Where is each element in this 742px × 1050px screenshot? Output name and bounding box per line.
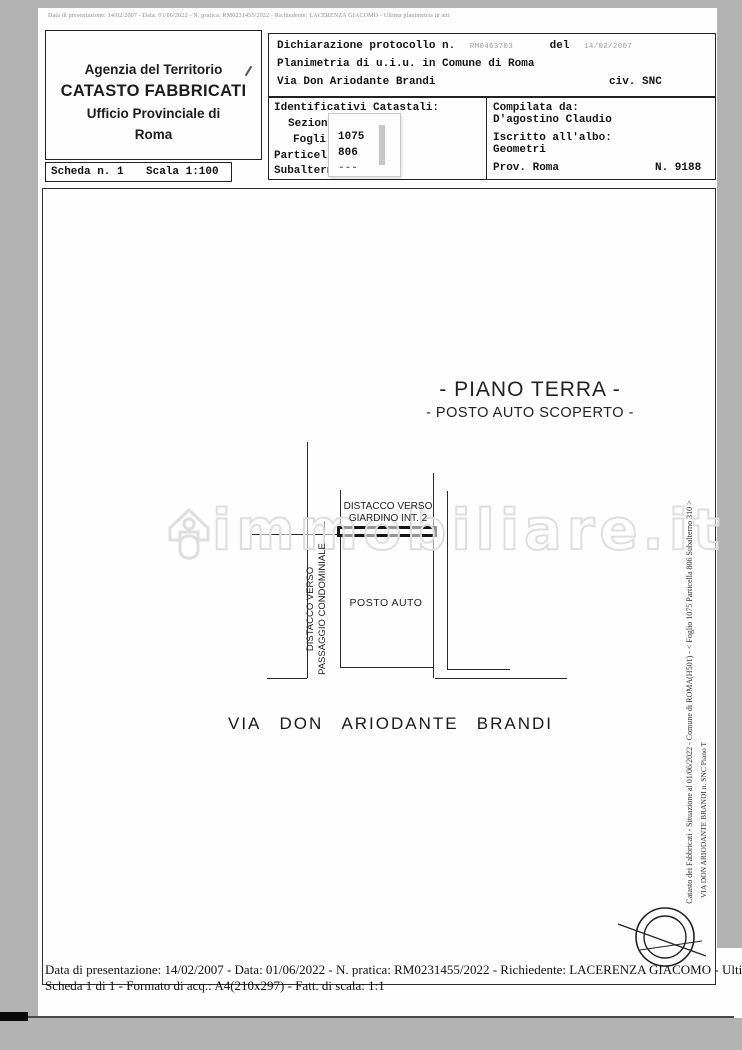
row-foglio: Fogli [293,134,326,146]
room-bottom-edge [340,667,434,668]
street-word-via: VIA [228,714,261,734]
albo-number: N. 9188 [655,162,701,174]
plan-title: - PIANO TERRA - [410,378,650,402]
protocol-date: 14/02/2007 [584,43,632,51]
catastali-box: Identificativi Catastali: Sezion Fogli P… [268,97,716,180]
giardino-label-line1: DISTACCO VERSO [328,501,448,513]
street-line: Via Don Ariodante Brandi [277,76,435,88]
catastali-value-listbox[interactable]: 1075 806 --- [328,113,401,177]
giardino-label-line2: GIARDINO INT. 2 [328,513,448,525]
planimetria-line: Planimetria di u.i.u. in Comune di Roma [277,58,534,70]
footer-line2: Scheda 1 di 1 - Formato di acq.: A4(210x… [45,978,385,994]
albo-value: Geometri [493,144,546,156]
document-page: Data di presentazione: 14/02/2007 - Data… [38,8,717,1018]
compilata-name: D'agostino Claudio [493,114,612,126]
street-word-ariodante: ARIODANTE [341,714,458,734]
margin-note-address: VIA DON ARIODANTE BRANDI n. SNC Piano T [699,748,709,898]
bottom-tick-left [267,678,307,679]
passaggio-label-line2: PASSAGGIO CONDOMINIALE [317,534,329,684]
scala-label: Scala 1:100 [146,166,219,178]
page-bottom-edge [28,1016,734,1018]
margin-note-catasto: Catasto dei Fabbricati - Situazione al 0… [685,452,697,952]
top-scan-note: Data di presentazione: 14/02/2007 - Data… [48,13,450,19]
street-name: VIA DON ARIODANTE BRANDI [228,714,553,734]
row-subalterno: Subaltern [274,165,333,177]
scan-corner-artifact [0,1012,28,1021]
catasto-title: CATASTO FABBRICATI [46,80,261,103]
protocol-label: Dichiarazione protocollo n. [277,40,455,52]
street-word-brandi: BRANDI [477,714,553,734]
compilata-title: Compilata da: [493,102,579,114]
scheda-box: Scheda n. 1 Scala 1:100 [45,162,232,182]
thick-wall-bar [337,526,437,537]
scheda-label: Scheda n. 1 [51,166,124,178]
agency-header-box: Agenzia del Territorio CATASTO FABBRICAT… [45,30,262,160]
listbox-option-foglio[interactable]: 1075 [338,131,364,143]
passaggio-label: DISTACCO VERSO PASSAGGIO CONDOMINIALE [305,534,329,684]
listbox-option-subalterno[interactable]: --- [338,162,358,174]
listbox-scrollbar[interactable] [379,125,385,165]
row-particella: Particell [274,150,333,162]
office-city: Roma [46,124,261,145]
footer-line1: Data di presentazione: 14/02/2007 - Data… [45,962,742,978]
row-sezione: Sezion [288,118,328,130]
agency-name: Agenzia del Territorio [46,59,261,80]
protocol-row: Dichiarazione protocollo n. RM0463703 de… [277,40,632,52]
del-label: del [550,40,570,52]
protocol-number: RM0463703 [470,43,513,51]
civ-label: civ. SNC [609,76,662,88]
prov-label: Prov. Roma [493,162,559,174]
bottom-tick-right [435,678,567,679]
bottom-tick-inner [447,669,510,670]
albo-label: Iscritto all'albo: [493,132,612,144]
room-label: POSTO AUTO [336,597,436,609]
street-word-don: DON [280,714,324,734]
giardino-label: DISTACCO VERSO GIARDINO INT. 2 [328,501,448,525]
listbox-option-particella[interactable]: 806 [338,147,358,159]
declaration-box: Dichiarazione protocollo n. RM0463703 de… [268,33,716,97]
passaggio-label-line1: DISTACCO VERSO [305,534,317,684]
plan-subtitle: - POSTO AUTO SCOPERTO - [390,405,670,421]
plan-frame [42,188,716,985]
office-line: Ufficio Provinciale di [46,103,261,124]
box-divider [486,98,487,179]
